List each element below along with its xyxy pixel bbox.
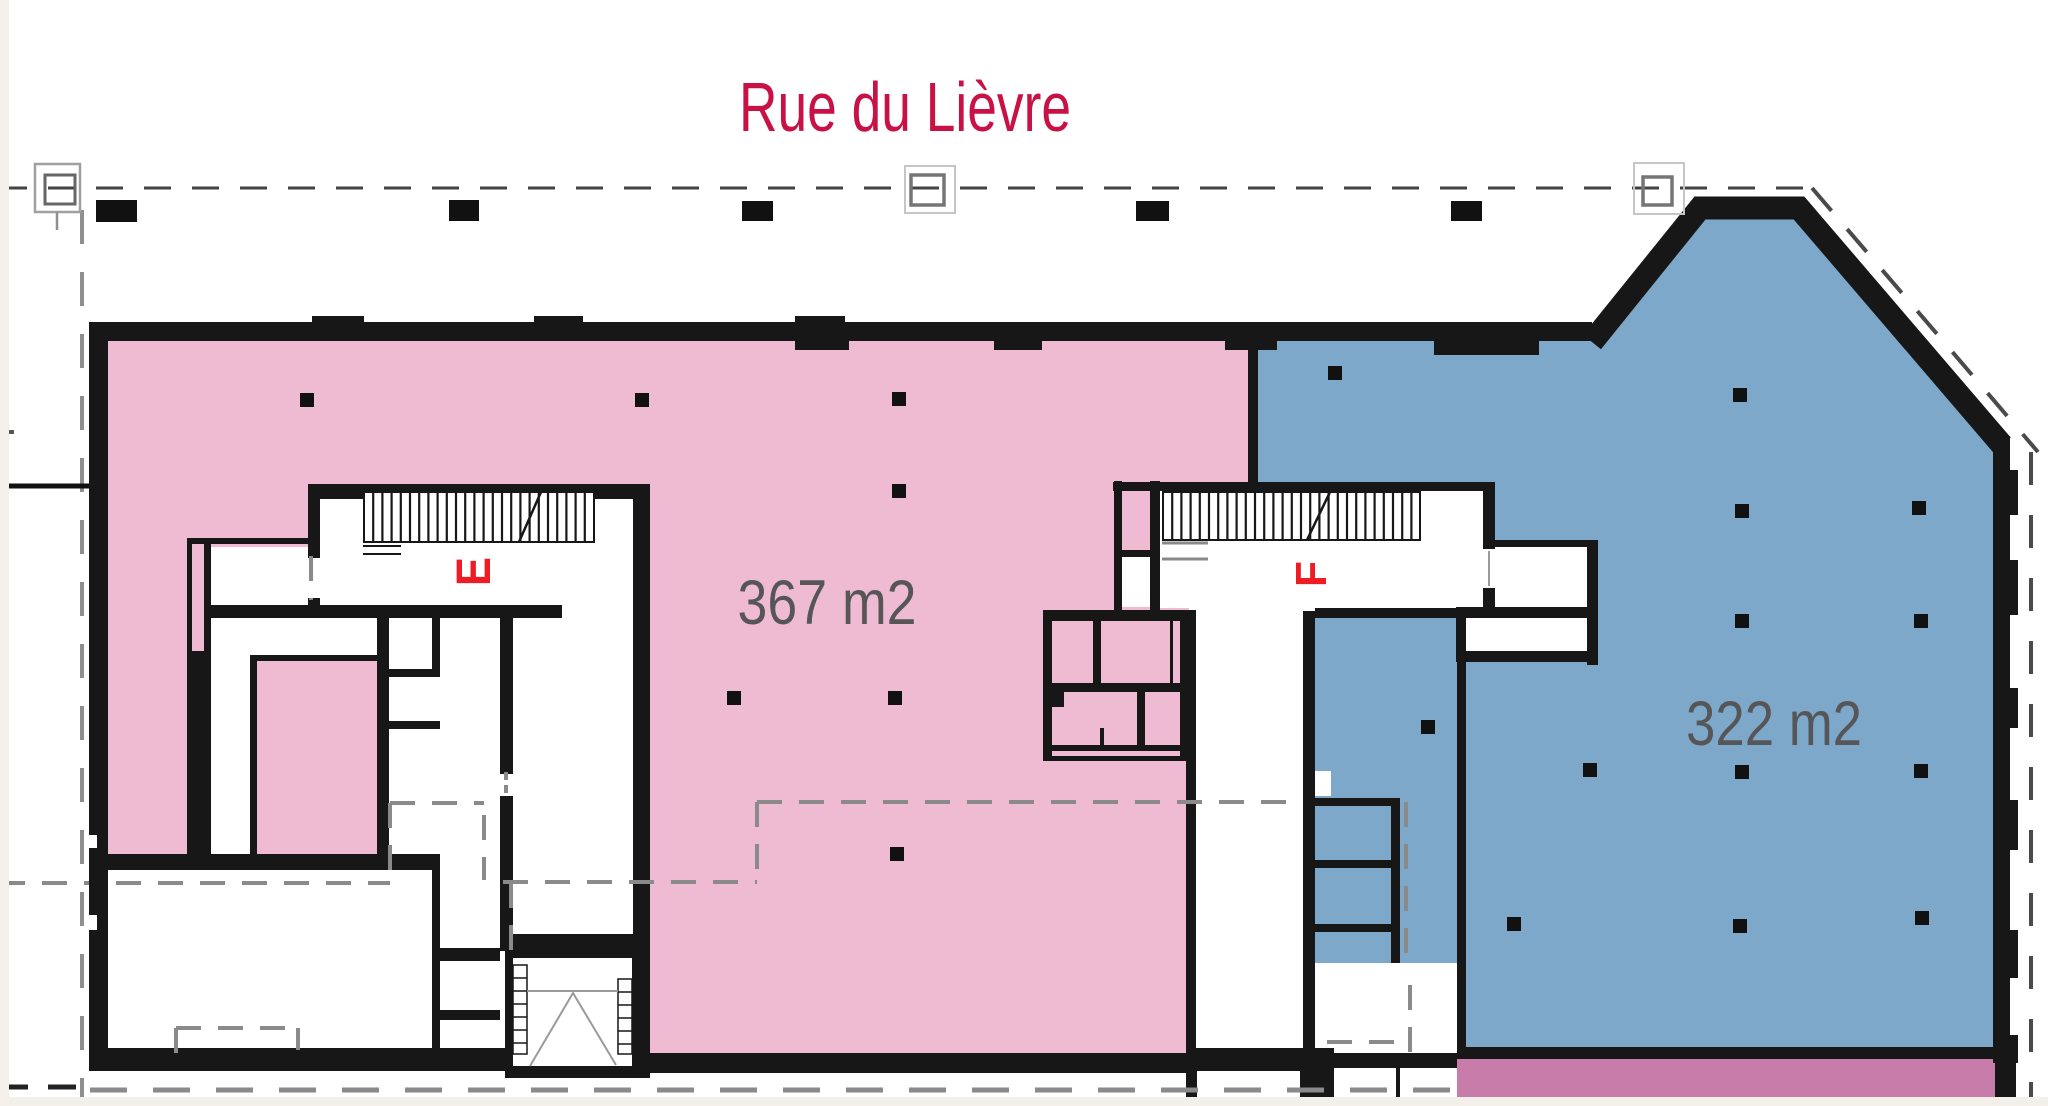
svg-text:E: E bbox=[448, 557, 501, 586]
svg-text:322 m2: 322 m2 bbox=[1686, 689, 1862, 759]
svg-text:Rue du Lièvre: Rue du Lièvre bbox=[739, 68, 1071, 146]
svg-text:F: F bbox=[1287, 561, 1336, 587]
svg-text:367 m2: 367 m2 bbox=[738, 568, 917, 638]
